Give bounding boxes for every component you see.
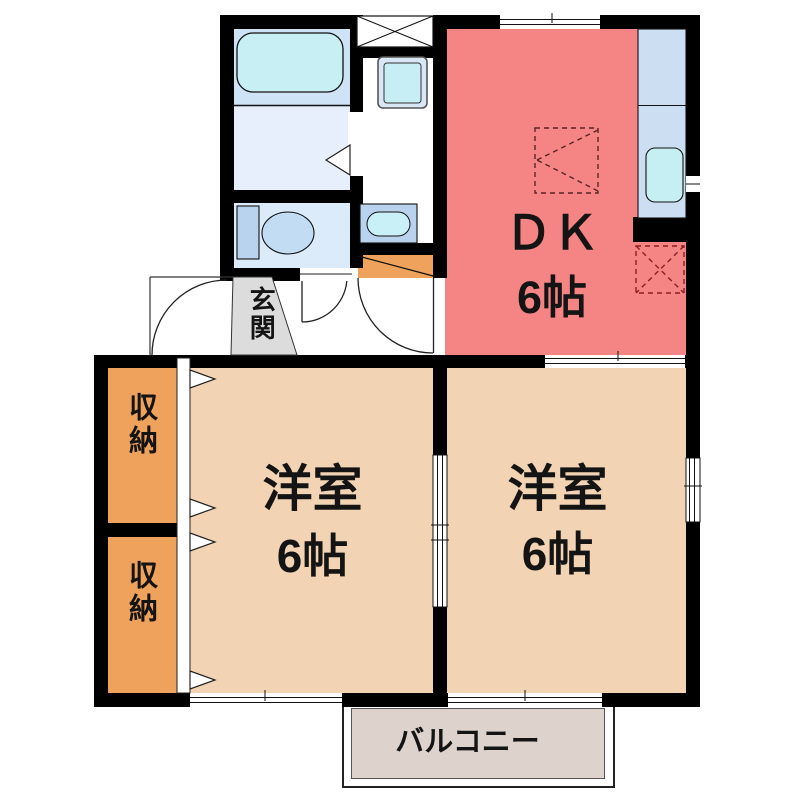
wall-lower-top xyxy=(94,355,545,368)
dk-doorway-gap xyxy=(433,278,445,355)
wall-toilet-bottom xyxy=(220,268,300,281)
entrance-door-arc xyxy=(152,280,227,355)
dk-door-arc xyxy=(358,278,433,353)
wall-closet-mid xyxy=(94,523,177,537)
western-left-label: 洋室 xyxy=(205,463,420,516)
wall-bottom-c xyxy=(602,693,700,707)
wall-top-a xyxy=(220,15,358,29)
window-dk-top xyxy=(500,13,600,29)
toilet-door-arc xyxy=(302,277,347,322)
wall-dk-left xyxy=(433,15,447,278)
western-right-size: 6帖 xyxy=(450,530,665,578)
wall-bottom-a xyxy=(94,693,190,707)
room-bathroom xyxy=(234,29,350,106)
closet-lower-label: 収納 xyxy=(125,560,155,626)
room-washroom xyxy=(234,106,350,190)
wall-top-c xyxy=(600,15,700,29)
room-toilet xyxy=(234,203,350,268)
entrance-step xyxy=(358,255,437,278)
western-left-size: 6帖 xyxy=(205,532,420,580)
dk-room-size: 6帖 xyxy=(462,274,642,321)
wall-xbox-stub xyxy=(355,47,435,58)
closet-door-track xyxy=(177,358,190,693)
wall-room-divider xyxy=(433,368,447,693)
wall-lower-top-right xyxy=(685,355,700,368)
western-right-label: 洋室 xyxy=(450,463,665,516)
wall-wash-toilet xyxy=(220,190,363,203)
wall-left-upper xyxy=(220,15,234,278)
balcony-label: バルコニー xyxy=(350,727,585,757)
wall-bottom-b xyxy=(342,693,448,707)
closet-upper-label: 収納 xyxy=(125,392,155,458)
entrance-label: 玄関 xyxy=(247,286,274,342)
washbasin xyxy=(360,204,417,243)
wall-basin-bottom xyxy=(352,243,447,255)
washer-space-marker xyxy=(357,16,433,47)
floorplan-canvas: ＤＫ 6帖 洋室 6帖 洋室 6帖 収納 収納 玄関 バルコニー xyxy=(0,0,800,800)
toilet-door-gap xyxy=(300,268,352,281)
dk-room-label: ＤＫ xyxy=(462,208,642,257)
washing-machine xyxy=(378,57,427,108)
